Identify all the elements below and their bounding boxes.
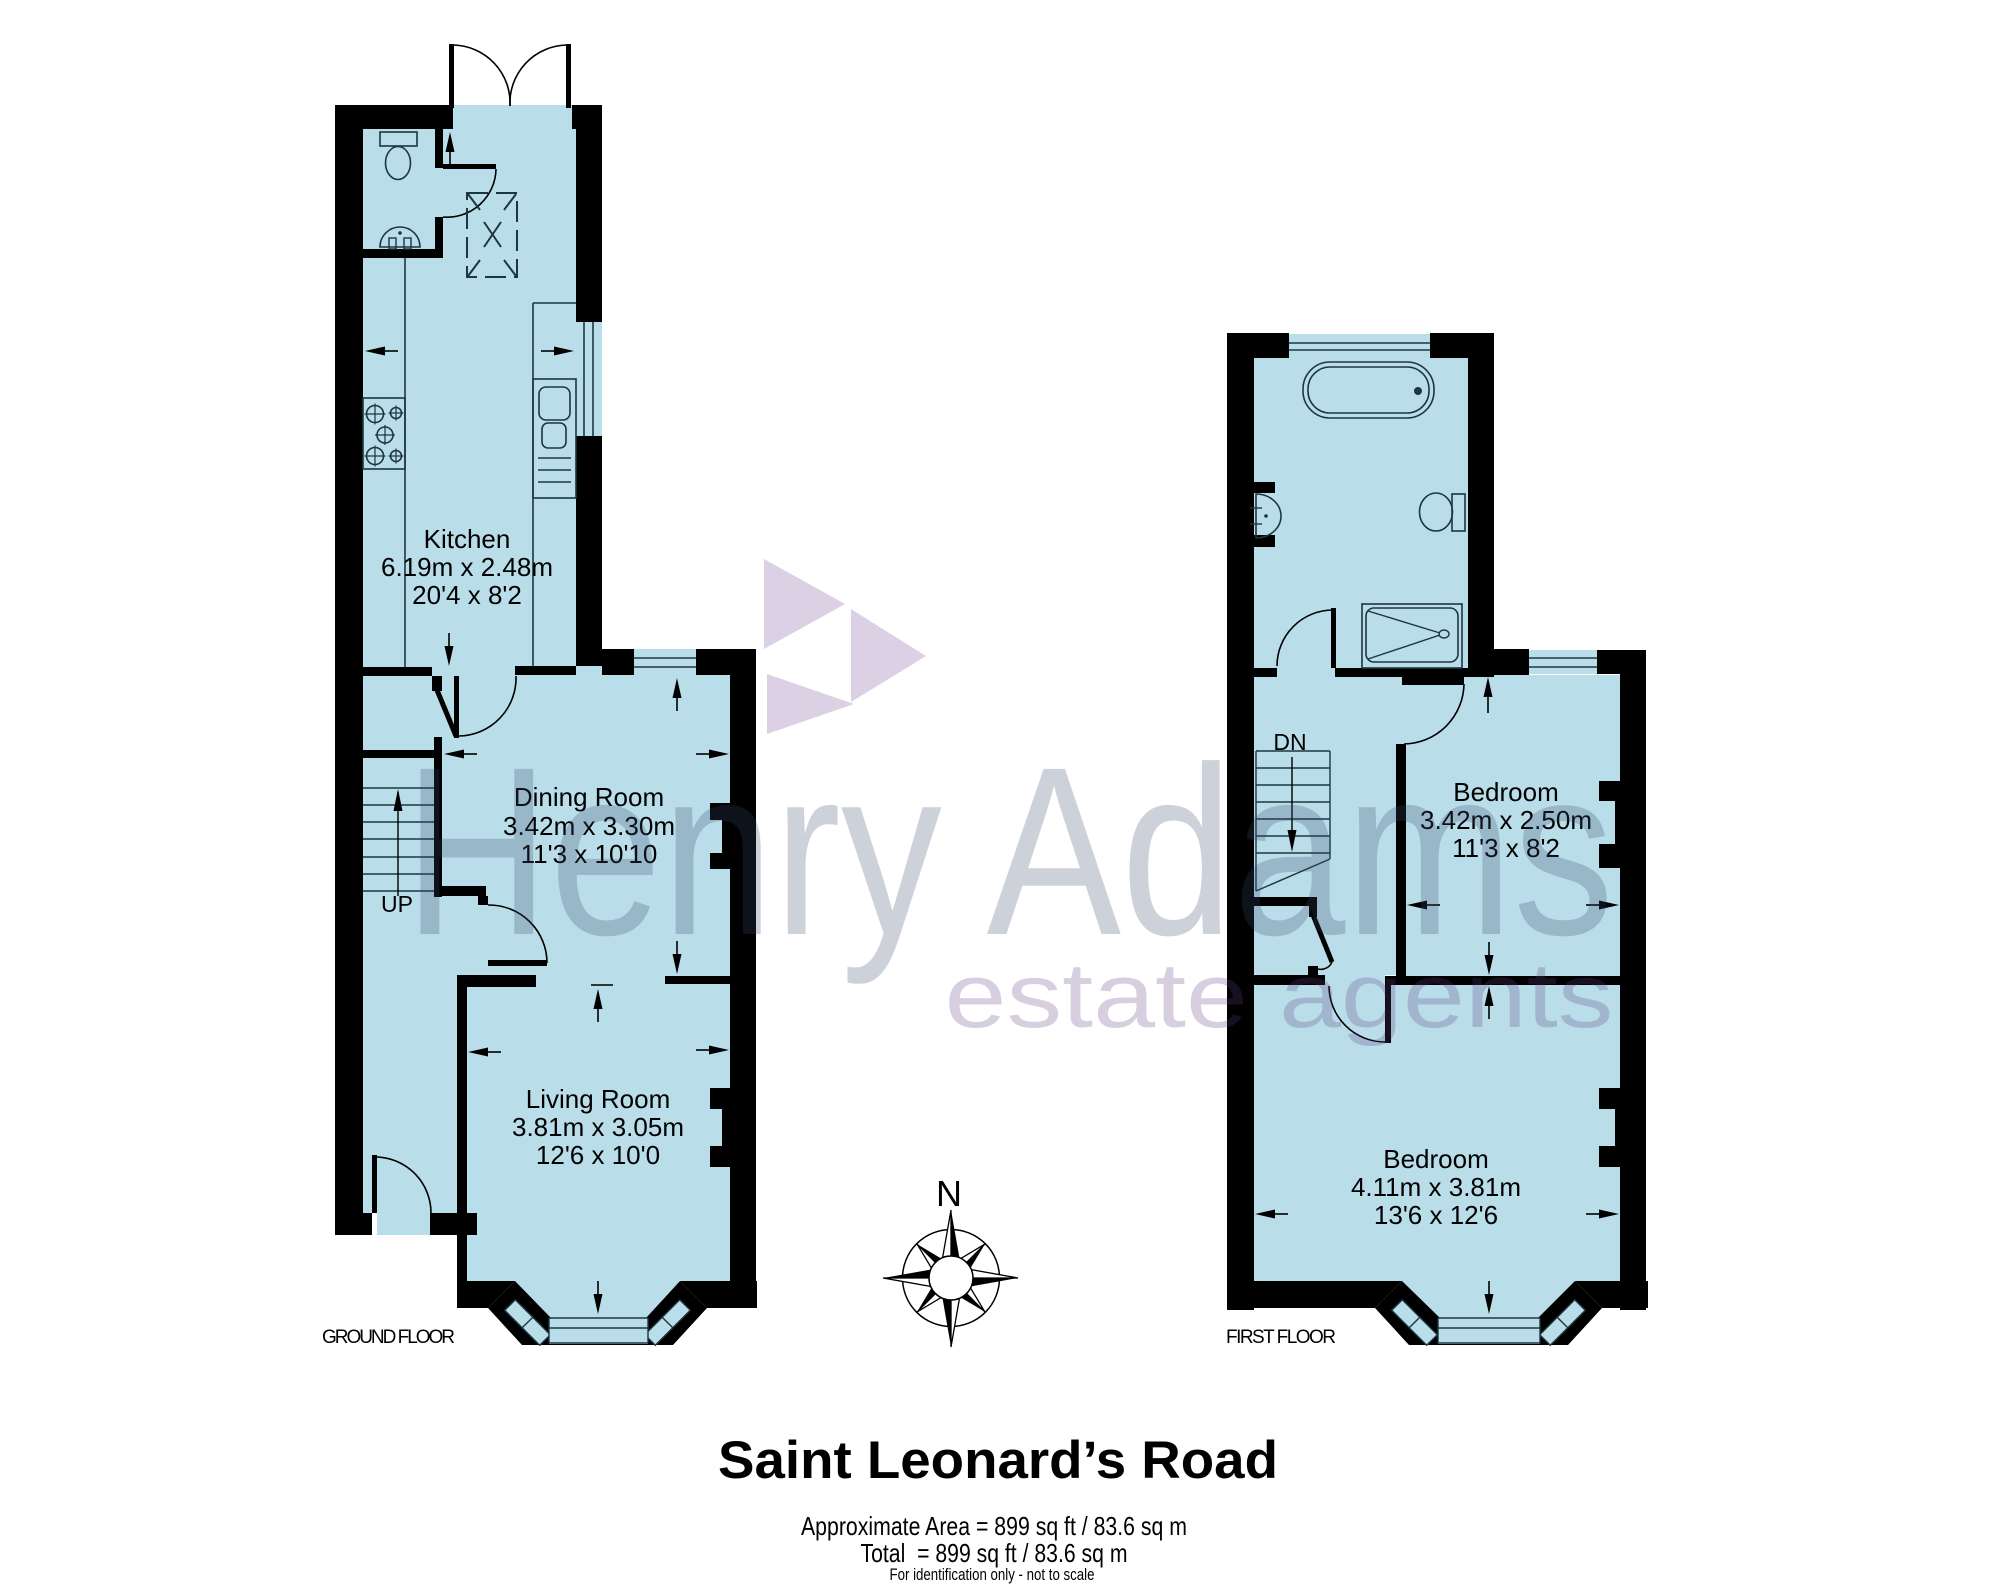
svg-text:Kitchen: Kitchen bbox=[424, 524, 511, 554]
svg-text:Bedroom: Bedroom bbox=[1383, 1144, 1489, 1174]
svg-text:Total = 899 sq ft / 83.6 sq m: Total = 899 sq ft / 83.6 sq m bbox=[861, 1538, 1128, 1568]
svg-text:FIRST FLOOR: FIRST FLOOR bbox=[1226, 1327, 1336, 1348]
svg-text:For identification only - not: For identification only - not to scale bbox=[890, 1565, 1095, 1584]
svg-text:Living Room: Living Room bbox=[526, 1084, 671, 1114]
svg-text:4.11m x 3.81m: 4.11m x 3.81m bbox=[1351, 1172, 1521, 1202]
svg-text:estate agents: estate agents bbox=[945, 945, 1614, 1047]
svg-text:Approximate Area = 899 sq ft /: Approximate Area = 899 sq ft / 83.6 sq m bbox=[801, 1511, 1187, 1541]
svg-text:Saint Leonard’s Road: Saint Leonard’s Road bbox=[718, 1431, 1278, 1490]
svg-text:GROUND FLOOR: GROUND FLOOR bbox=[322, 1327, 455, 1348]
svg-text:13'6 x 12'6: 13'6 x 12'6 bbox=[1374, 1200, 1498, 1230]
svg-text:N: N bbox=[936, 1173, 962, 1214]
svg-text:3.81m x 3.05m: 3.81m x 3.05m bbox=[512, 1112, 684, 1142]
svg-text:20'4 x 8'2: 20'4 x 8'2 bbox=[412, 580, 522, 610]
svg-text:6.19m x 2.48m: 6.19m x 2.48m bbox=[381, 552, 553, 582]
svg-text:12'6 x 10'0: 12'6 x 10'0 bbox=[536, 1140, 660, 1170]
